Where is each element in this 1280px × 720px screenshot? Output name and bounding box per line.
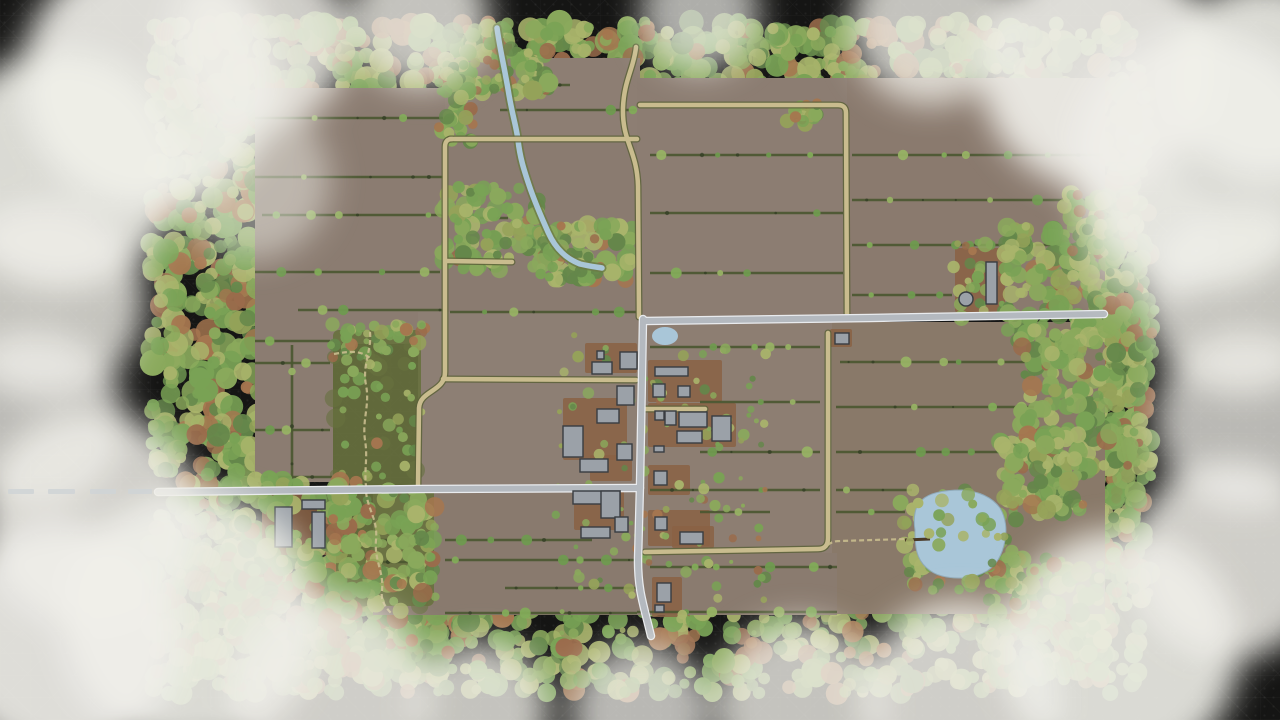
map-preview [0, 0, 1280, 720]
building [655, 605, 664, 612]
building [679, 412, 707, 427]
building [655, 367, 688, 376]
building [597, 351, 604, 359]
building [678, 386, 690, 397]
building [986, 262, 997, 304]
building [657, 583, 671, 602]
building [680, 532, 703, 544]
building [615, 517, 628, 532]
building [835, 333, 849, 344]
building [620, 352, 637, 369]
building [665, 411, 676, 425]
building [617, 386, 634, 405]
building [617, 444, 632, 460]
building [677, 431, 702, 443]
building [592, 362, 612, 374]
building [302, 500, 325, 509]
building [580, 459, 608, 472]
building [655, 411, 664, 420]
building [653, 384, 665, 397]
building [654, 471, 667, 485]
building [597, 409, 619, 423]
building [712, 416, 731, 441]
farm-map-image [0, 0, 1280, 720]
building [563, 426, 583, 457]
building [655, 517, 667, 530]
building [581, 527, 610, 538]
building [601, 491, 620, 518]
building [654, 446, 664, 452]
building [312, 512, 325, 548]
silo [959, 292, 973, 306]
